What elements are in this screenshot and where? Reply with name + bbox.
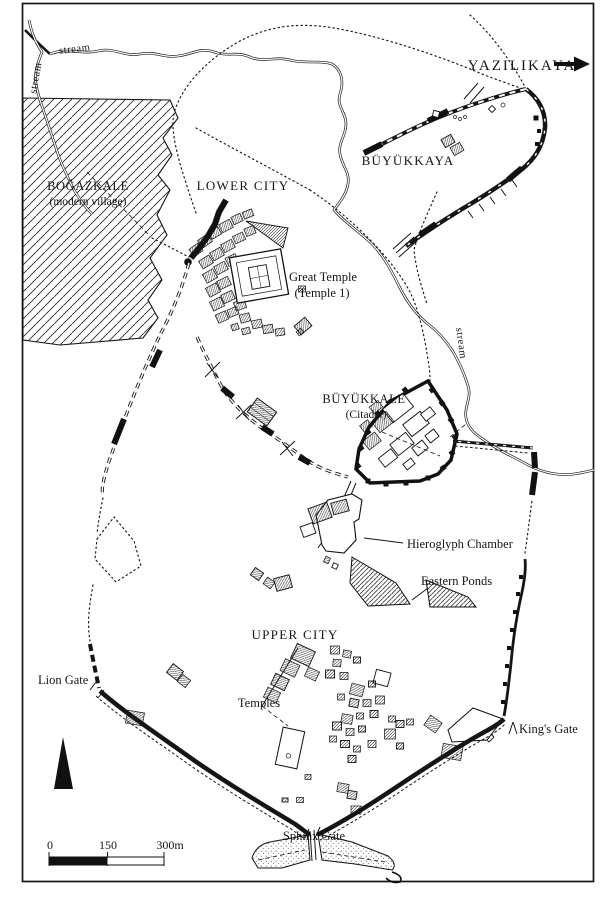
building xyxy=(305,775,311,780)
building xyxy=(535,142,539,146)
kings-gate-label: King's Gate xyxy=(519,722,578,736)
building xyxy=(537,129,541,133)
building xyxy=(370,711,378,718)
building xyxy=(297,798,304,803)
building xyxy=(397,743,404,749)
upper-city-label: UPPER CITY xyxy=(251,627,338,642)
building xyxy=(349,698,359,707)
great-temple-sublabel: (Temple 1) xyxy=(294,286,349,300)
building xyxy=(341,714,353,725)
building xyxy=(376,696,385,704)
building xyxy=(510,628,514,632)
building xyxy=(342,650,351,658)
buyukkale-label: BÜYÜKKALE xyxy=(322,392,405,406)
building xyxy=(333,722,342,730)
building xyxy=(357,713,364,719)
building xyxy=(503,682,507,686)
eastern-ponds-label: Eastern Ponds xyxy=(421,574,492,588)
building xyxy=(407,719,414,725)
building xyxy=(534,116,539,121)
map-canvas: stream stream stream BÜYÜKKAYA xyxy=(0,0,607,900)
building xyxy=(396,721,404,728)
scale-150: 150 xyxy=(99,838,117,852)
building xyxy=(330,736,337,742)
building xyxy=(507,646,511,650)
building xyxy=(519,575,523,579)
building xyxy=(337,783,349,794)
bogazkale-sublabel: (modern village) xyxy=(50,196,127,208)
lower-city-label: LOWER CITY xyxy=(197,178,290,193)
building xyxy=(385,729,396,739)
hieroglyph-chamber-label: Hieroglyph Chamber xyxy=(407,537,514,551)
building xyxy=(275,328,285,336)
building xyxy=(369,681,376,687)
building xyxy=(282,798,288,802)
building xyxy=(426,476,431,481)
scale-0: 0 xyxy=(47,838,53,852)
hattusa-site-map: stream stream stream BÜYÜKKAYA xyxy=(0,0,607,900)
building xyxy=(513,610,517,614)
great-temple-building xyxy=(229,249,288,303)
building xyxy=(516,592,520,596)
building xyxy=(389,716,396,722)
building xyxy=(340,673,348,680)
building xyxy=(368,741,376,748)
scale-300: 300m xyxy=(156,838,184,852)
buyukkale-sublabel: (Citadel) xyxy=(346,409,387,421)
building xyxy=(354,746,361,752)
building xyxy=(341,741,350,748)
buyukkaya-label: BÜYÜKKAYA xyxy=(362,153,455,168)
great-temple-label: Great Temple xyxy=(289,270,357,284)
temples-label: Temples xyxy=(238,696,280,710)
building xyxy=(501,700,505,704)
building xyxy=(347,790,357,799)
building xyxy=(432,110,439,117)
building xyxy=(384,482,389,487)
building xyxy=(505,664,509,668)
building xyxy=(251,319,262,329)
building xyxy=(359,726,366,732)
building xyxy=(404,481,409,486)
building xyxy=(346,729,354,736)
bogazkale-label: BOĞAZKALE xyxy=(47,179,129,193)
lion-gate-label: Lion Gate xyxy=(38,673,89,687)
building xyxy=(333,659,342,667)
building xyxy=(326,670,335,678)
building xyxy=(331,646,340,654)
building xyxy=(363,700,371,707)
building xyxy=(366,479,371,484)
yazilikaya: YAZILIKAYA xyxy=(468,57,590,75)
building xyxy=(354,657,361,663)
building xyxy=(348,756,356,763)
building xyxy=(262,324,273,334)
building xyxy=(338,694,345,700)
